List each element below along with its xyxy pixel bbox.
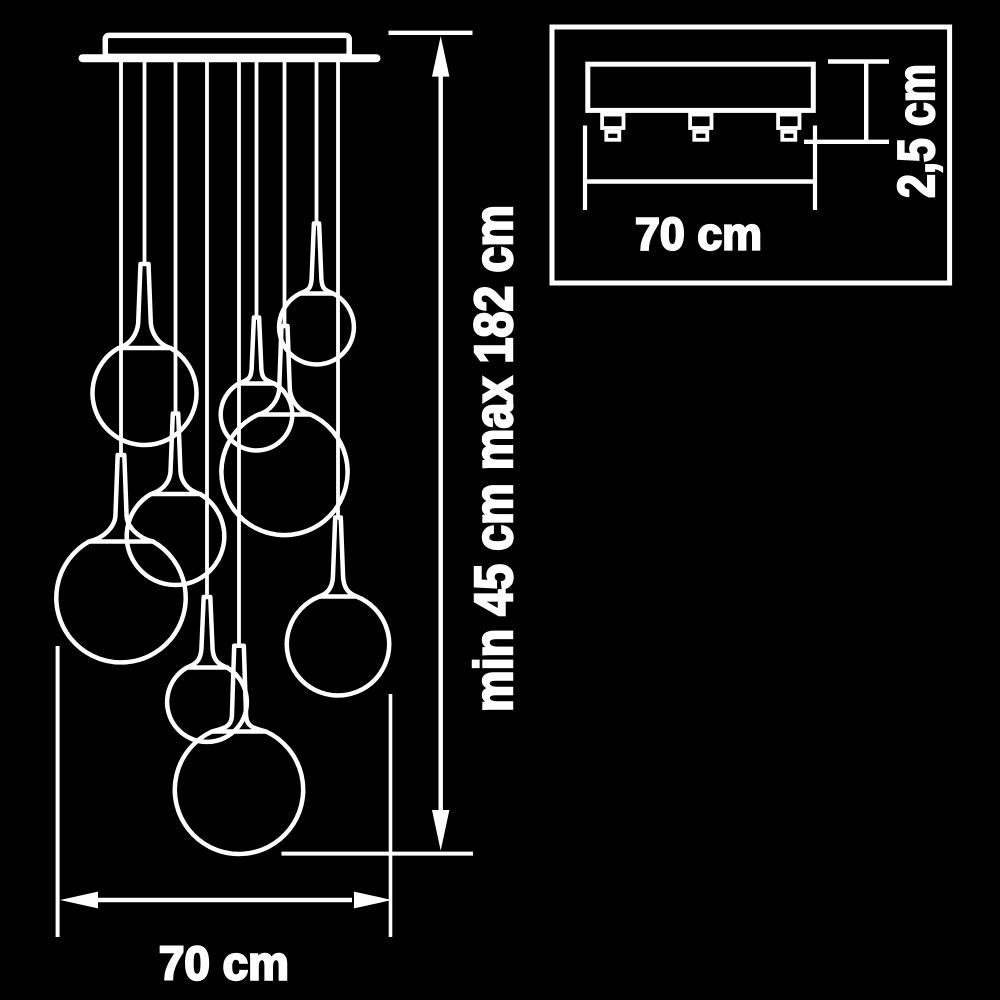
svg-text:2,5 cm: 2,5 cm — [888, 64, 946, 198]
svg-text:min 45 cm max 182 cm: min 45 cm max 182 cm — [465, 205, 524, 712]
svg-text:70 cm: 70 cm — [635, 208, 762, 259]
svg-text:70 cm: 70 cm — [159, 937, 289, 990]
